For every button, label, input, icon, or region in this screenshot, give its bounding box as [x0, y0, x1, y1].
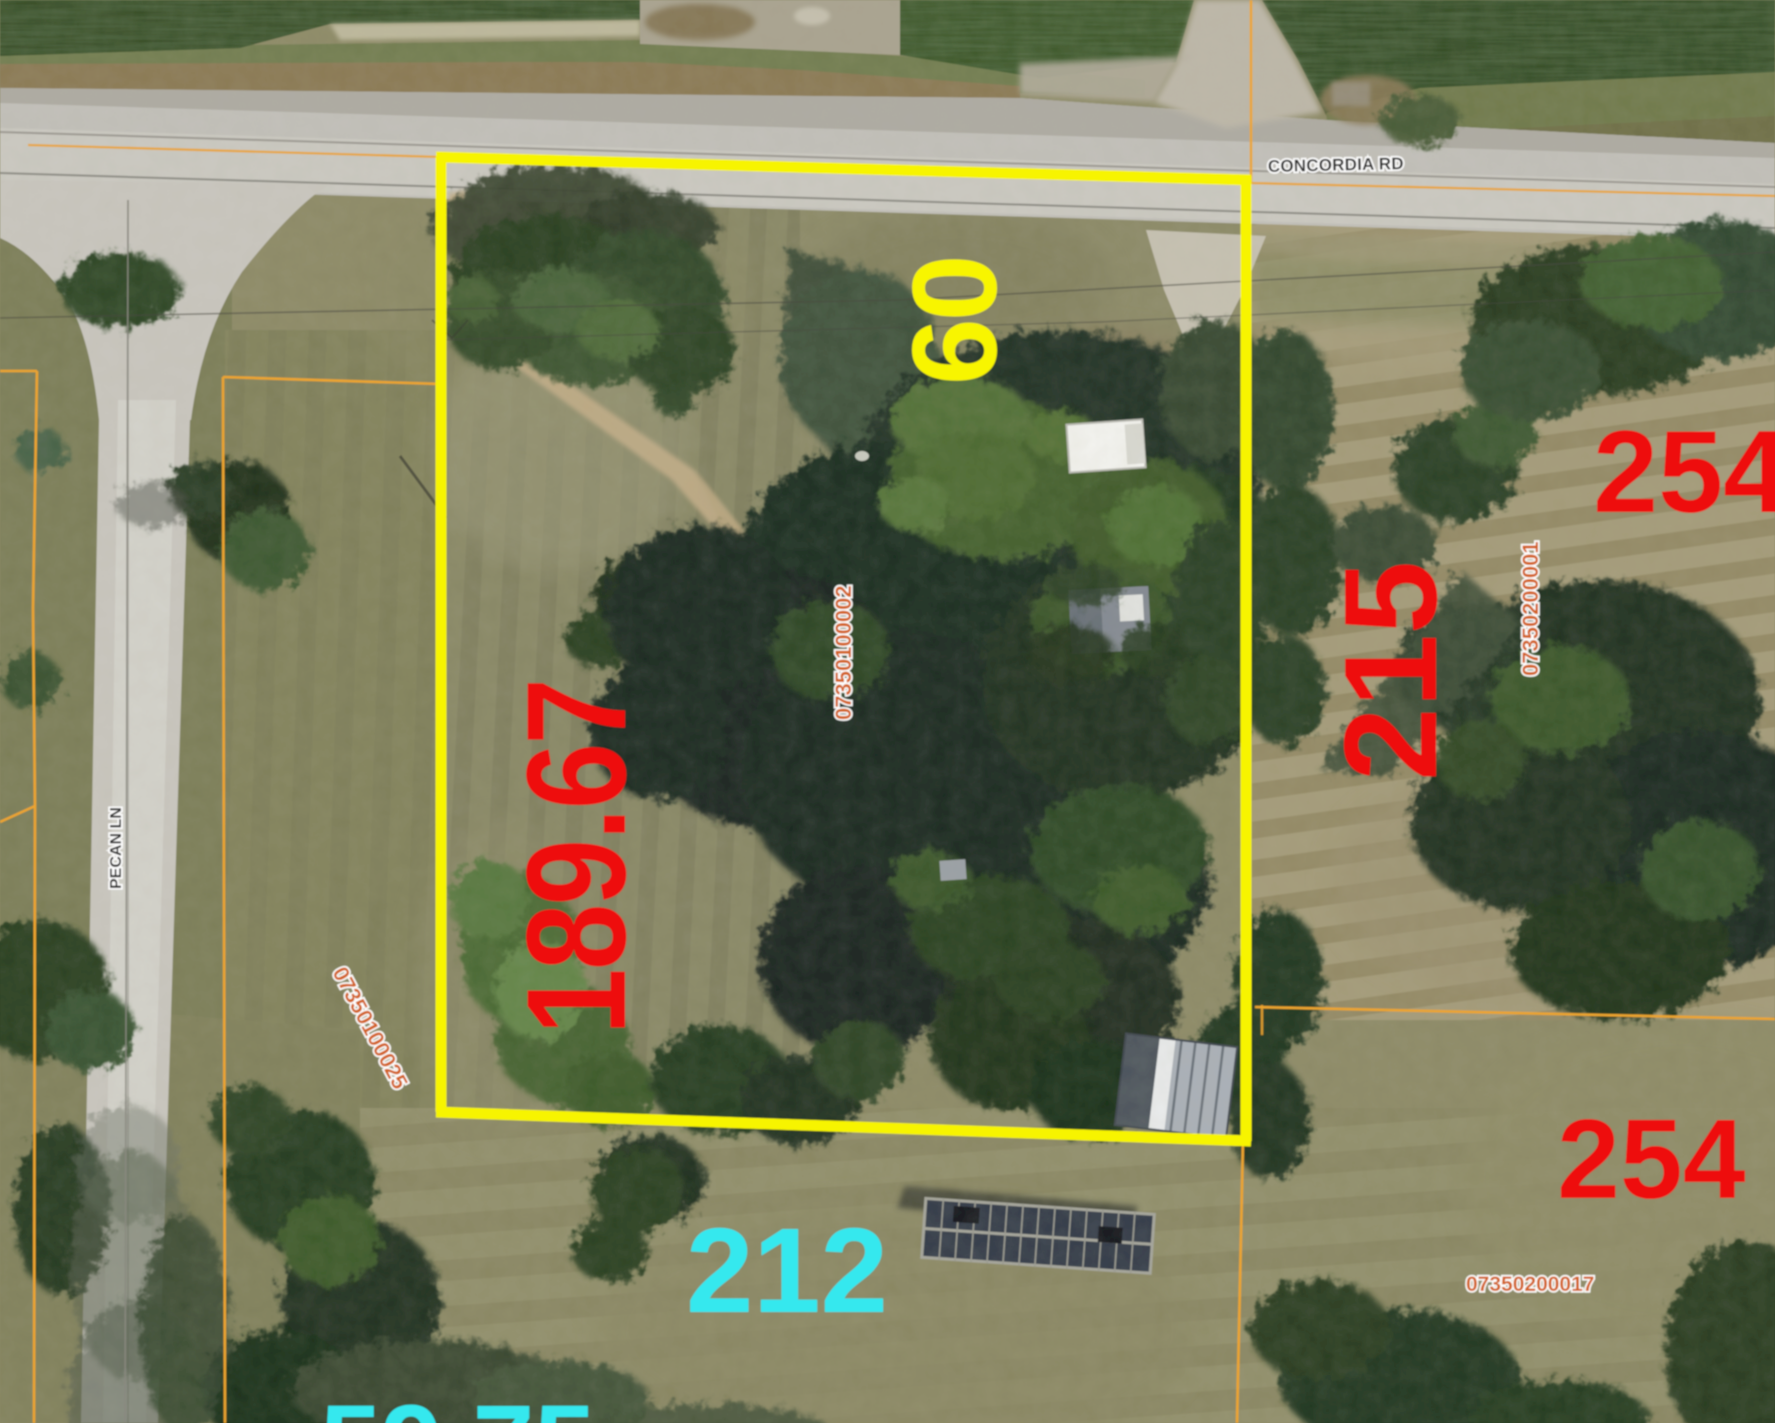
svg-text:212: 212: [686, 1202, 888, 1338]
svg-text:07350100002: 07350100002: [831, 585, 856, 720]
svg-text:07350200017: 07350200017: [1466, 1273, 1594, 1296]
svg-text:215: 215: [1317, 561, 1464, 781]
svg-text:189.67: 189.67: [497, 680, 656, 1035]
svg-text:254: 254: [1557, 1096, 1746, 1222]
svg-text:254: 254: [1593, 406, 1775, 537]
svg-text:PECAN LN: PECAN LN: [108, 807, 125, 889]
svg-text:59.75: 59.75: [320, 1383, 595, 1423]
svg-text:60: 60: [888, 258, 1022, 385]
svg-text:CONCORDIA RD: CONCORDIA RD: [1268, 154, 1404, 176]
svg-text:07350200001: 07350200001: [1518, 541, 1543, 676]
